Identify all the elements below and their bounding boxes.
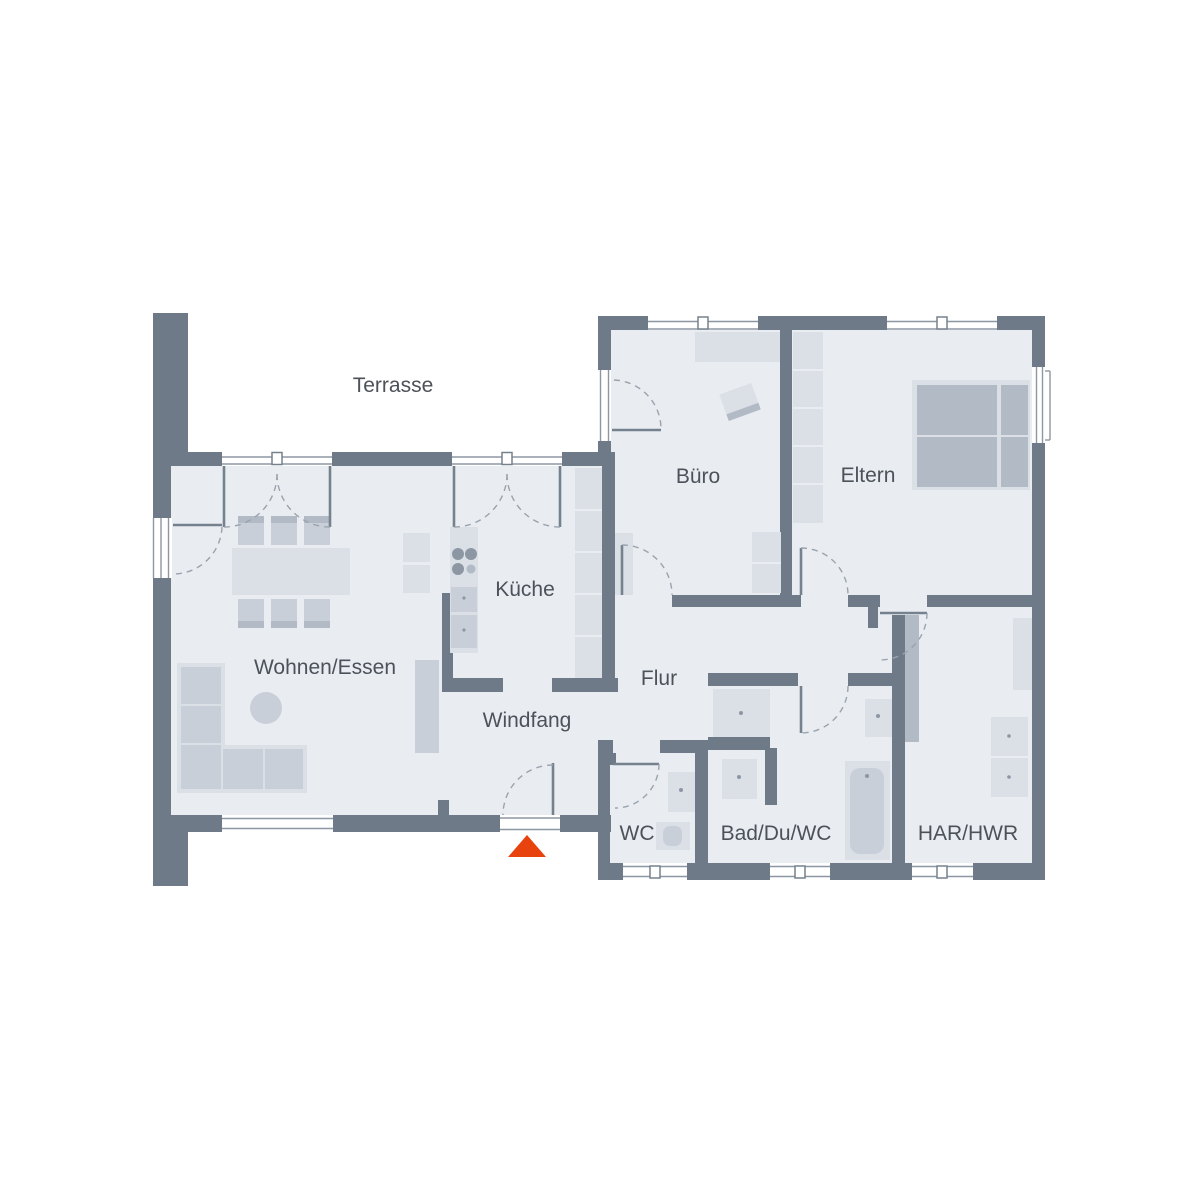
opening-buero-door (615, 595, 672, 607)
appliance-knob (462, 628, 465, 631)
appliance-knob (1007, 734, 1011, 738)
room-label-bad-du-wc: Bad/Du/WC (721, 822, 832, 845)
bad-washbasin-left (722, 759, 757, 799)
opening-bad-door (798, 673, 848, 686)
sofa-cushion (265, 749, 303, 789)
wall-shower-partition (708, 737, 770, 750)
window-living-south (222, 815, 333, 832)
wall-west-south-stub (153, 832, 188, 886)
bed-mattress (917, 385, 997, 435)
floor-plan-svg: Terrasse Wohnen/Essen Küche Windfang Flu… (0, 0, 1200, 1200)
room-label-windfang: Windfang (483, 709, 572, 732)
bad-washbasin-right (865, 699, 892, 737)
sofa-cushion (181, 745, 221, 789)
window-eltern-east (1032, 367, 1050, 443)
faucet (876, 714, 880, 718)
window-bad-south (770, 863, 830, 880)
bathtub-basin (850, 768, 884, 854)
bed-mattress (917, 437, 997, 487)
wall-bad-partition-stub (765, 748, 777, 805)
wardrobe (793, 332, 823, 523)
chair (238, 599, 264, 621)
hob-burner (465, 548, 477, 560)
desk (695, 332, 780, 362)
coffee-table (250, 692, 282, 724)
wall-terrace-west (153, 313, 188, 452)
faucet (679, 788, 683, 792)
wall-house-west (153, 452, 171, 832)
room-label-wohnen-essen: Wohnen/Essen (254, 656, 396, 679)
chair-back (238, 621, 264, 628)
opening-har-door (880, 595, 927, 607)
chair-back (238, 516, 264, 523)
wall-kitchen-windfang-a (442, 678, 503, 692)
opening-eltern-door (801, 595, 848, 607)
wc-washbasin (668, 772, 695, 812)
har-cabinet (1013, 618, 1032, 690)
hob-burner (467, 565, 476, 574)
wall-buero-eltern (780, 330, 792, 607)
sofa-cushion (223, 749, 263, 789)
wall-har-door-jamb (868, 607, 878, 628)
window-symbol (698, 317, 708, 329)
chair-back (271, 516, 297, 523)
bed-pillow (1001, 385, 1028, 435)
buero-shelf (615, 533, 633, 595)
room-label-har-hwr: HAR/HWR (918, 822, 1018, 845)
dining-table (232, 548, 350, 595)
room-label-terrasse: Terrasse (353, 374, 434, 397)
hob-burner (452, 563, 464, 575)
bed-pillow (1001, 437, 1028, 487)
window-wc-south (623, 863, 687, 880)
kitchen-counter-east (575, 468, 602, 678)
sofa-cushion (181, 667, 221, 704)
window-har-south (912, 863, 973, 880)
chair (304, 599, 330, 621)
window-eltern-north (887, 316, 997, 330)
room-label-wc: WC (620, 822, 655, 845)
wall-kitchen-windfang-b (552, 678, 618, 692)
window-symbol (502, 453, 512, 465)
kitchen-cabinet (403, 565, 430, 593)
appliance-knob (462, 596, 465, 599)
opening-wc-door (613, 740, 660, 753)
sideboard (415, 660, 439, 753)
window-symbol (795, 866, 805, 878)
room-label-eltern: Eltern (841, 464, 896, 487)
wall-windfang-stub (438, 800, 449, 815)
floor-plan-canvas: Terrasse Wohnen/Essen Küche Windfang Flu… (0, 0, 1200, 1200)
window-symbol (650, 866, 660, 878)
wall-wc-bad (695, 740, 708, 863)
wall-bad-har (892, 615, 905, 880)
chair-back (271, 621, 297, 628)
sofa-cushion (181, 706, 221, 743)
chair (271, 599, 297, 621)
room-label-buero: Büro (676, 465, 720, 488)
room-label-kueche: Küche (495, 578, 555, 601)
chair-back (304, 621, 330, 628)
entrance-marker-triangle (508, 835, 546, 857)
duct-chase (905, 615, 919, 742)
window-symbol (937, 317, 947, 329)
kitchen-cabinet (403, 533, 430, 562)
window-buero-north (648, 316, 758, 330)
room-label-flur: Flur (641, 667, 677, 690)
faucet (737, 775, 741, 779)
appliance-knob (1007, 775, 1011, 779)
chair (271, 523, 297, 545)
toilet-seat (663, 826, 682, 846)
faucet (865, 774, 869, 778)
hob-burner (452, 548, 464, 560)
chair (238, 523, 264, 545)
wall-bad-north-left (708, 673, 798, 686)
wall-kitchen-flur (602, 452, 615, 692)
window-symbol (937, 866, 947, 878)
shower-drain (739, 711, 743, 715)
window-symbol (272, 453, 282, 465)
